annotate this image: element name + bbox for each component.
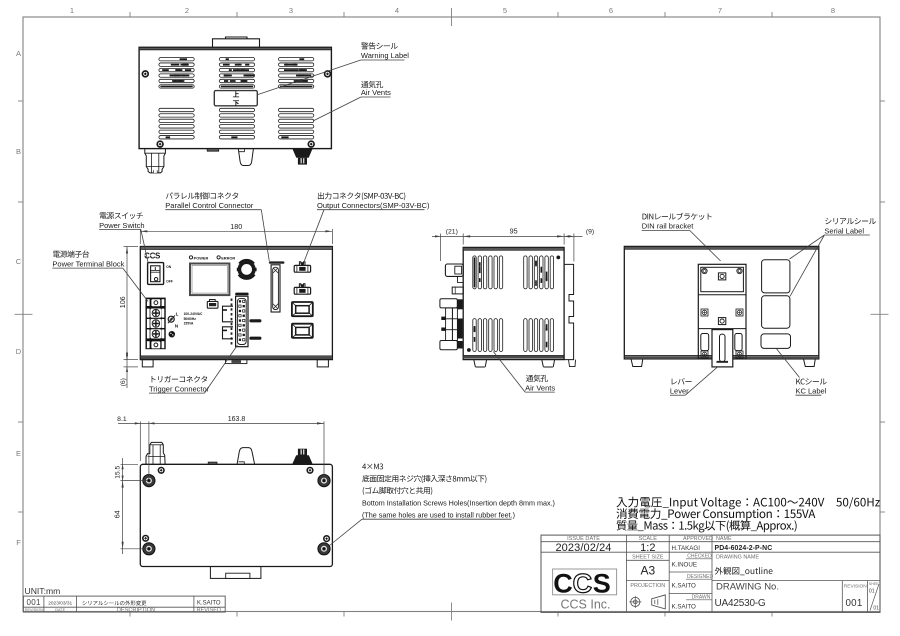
svg-text:ON: ON — [166, 265, 172, 269]
svg-text:Power Switch: Power Switch — [99, 221, 144, 230]
svg-text:1:2: 1:2 — [640, 542, 655, 554]
svg-text:C: C — [16, 257, 22, 266]
svg-text:01: 01 — [873, 605, 879, 611]
svg-text:S: S — [593, 569, 611, 599]
svg-text:01: 01 — [869, 589, 875, 595]
svg-text:(9): (9) — [586, 229, 594, 236]
svg-text:001: 001 — [26, 598, 40, 607]
svg-text:SHEET SIZE: SHEET SIZE — [632, 555, 664, 561]
svg-text:2023/02/24: 2023/02/24 — [555, 542, 611, 554]
svg-text:180: 180 — [230, 222, 242, 231]
svg-text:K.INOUE: K.INOUE — [672, 562, 697, 569]
svg-text:6: 6 — [609, 6, 613, 15]
svg-text:Air Vents: Air Vents — [361, 88, 391, 97]
svg-text:L: L — [176, 311, 179, 317]
svg-text:Parallel Control Connector: Parallel Control Connector — [165, 201, 253, 210]
svg-text:UA42530-G: UA42530-G — [715, 598, 766, 609]
svg-text:APPROVED: APPROVED — [683, 536, 713, 542]
svg-text:PD4-6024-2-P-NC: PD4-6024-2-P-NC — [715, 545, 773, 552]
svg-text:Serial Label: Serial Label — [824, 226, 864, 235]
svg-text:ERROR: ERROR — [221, 255, 235, 260]
svg-text:Warning Label: Warning Label — [361, 51, 409, 60]
svg-text:4: 4 — [395, 6, 399, 15]
svg-text:C: C — [573, 569, 593, 599]
svg-text:Air Vents: Air Vents — [525, 383, 555, 392]
svg-text:A: A — [16, 49, 21, 58]
svg-text:N: N — [175, 324, 179, 330]
svg-text:A3: A3 — [640, 564, 655, 578]
svg-text:OFF: OFF — [166, 280, 173, 284]
svg-text:K.SAITO: K.SAITO — [672, 603, 696, 610]
svg-text:Trigger Connector: Trigger Connector — [149, 384, 210, 393]
svg-text:DESCRIPTION: DESCRIPTION — [117, 607, 155, 613]
svg-text:7: 7 — [718, 6, 722, 15]
svg-text:2023/03/31: 2023/03/31 — [48, 601, 72, 607]
svg-text:PROJECTION: PROJECTION — [630, 583, 665, 589]
svg-text:(21): (21) — [446, 229, 458, 236]
svg-text:8.1: 8.1 — [117, 416, 127, 423]
svg-text:REVISED: REVISED — [197, 607, 222, 613]
svg-text:2: 2 — [185, 6, 189, 15]
svg-text:SCALE: SCALE — [639, 536, 658, 542]
svg-text:(The same holes are used to in: (The same holes are used to install rubb… — [362, 511, 515, 520]
svg-text:(6): (6) — [120, 378, 127, 386]
svg-text:KC Label: KC Label — [796, 387, 827, 396]
svg-text:50/60Hz: 50/60Hz — [184, 317, 197, 321]
svg-text:Bottom Installation Screws Hol: Bottom Installation Screws Holes(Inserti… — [362, 498, 555, 507]
svg-text:DRAWN: DRAWN — [692, 595, 711, 601]
svg-text:SHEET: SHEET — [869, 582, 882, 586]
svg-text:NAME: NAME — [716, 536, 732, 542]
svg-text:100-240VAC: 100-240VAC — [184, 312, 203, 316]
svg-text:UNIT:mm: UNIT:mm — [25, 586, 61, 596]
svg-text:E: E — [16, 449, 21, 458]
svg-text:POWER: POWER — [194, 255, 209, 260]
svg-text:CHECKED: CHECKED — [687, 554, 712, 560]
svg-text:F: F — [16, 538, 21, 547]
svg-text:106: 106 — [118, 296, 127, 308]
svg-text:CCS Inc.: CCS Inc. — [560, 598, 610, 612]
svg-text:DATE: DATE — [55, 608, 65, 612]
svg-text:C: C — [553, 569, 573, 599]
svg-text:Output Connectors(SMP-03V-BC): Output Connectors(SMP-03V-BC) — [317, 201, 430, 210]
svg-text:REVISION: REVISION — [25, 608, 43, 612]
svg-text:H.TAKAGI: H.TAKAGI — [672, 545, 701, 552]
svg-text:5: 5 — [503, 6, 507, 15]
svg-text:1: 1 — [70, 6, 74, 15]
svg-text:DRAWING No.: DRAWING No. — [716, 582, 779, 593]
svg-text:DESIGNED: DESIGNED — [687, 574, 714, 580]
svg-text:001: 001 — [846, 598, 863, 609]
svg-text:95: 95 — [510, 227, 518, 236]
svg-text:155VA: 155VA — [184, 321, 194, 325]
svg-text:K.SAITO: K.SAITO — [197, 601, 221, 607]
svg-text:15.5: 15.5 — [114, 466, 121, 479]
svg-text:B: B — [16, 147, 21, 156]
svg-text:3: 3 — [289, 6, 293, 15]
svg-text:D: D — [16, 347, 22, 356]
svg-text:DRAWING NAME: DRAWING NAME — [716, 555, 759, 561]
svg-text:REVISION: REVISION — [844, 583, 867, 589]
svg-text:K.SAITO: K.SAITO — [672, 583, 696, 590]
svg-text:Power Terminal Block: Power Terminal Block — [52, 259, 124, 268]
svg-text:163.8: 163.8 — [228, 416, 246, 423]
svg-text:8: 8 — [831, 6, 835, 15]
svg-text:64: 64 — [114, 510, 121, 518]
svg-text:DIN rail bracket: DIN rail bracket — [642, 222, 695, 231]
